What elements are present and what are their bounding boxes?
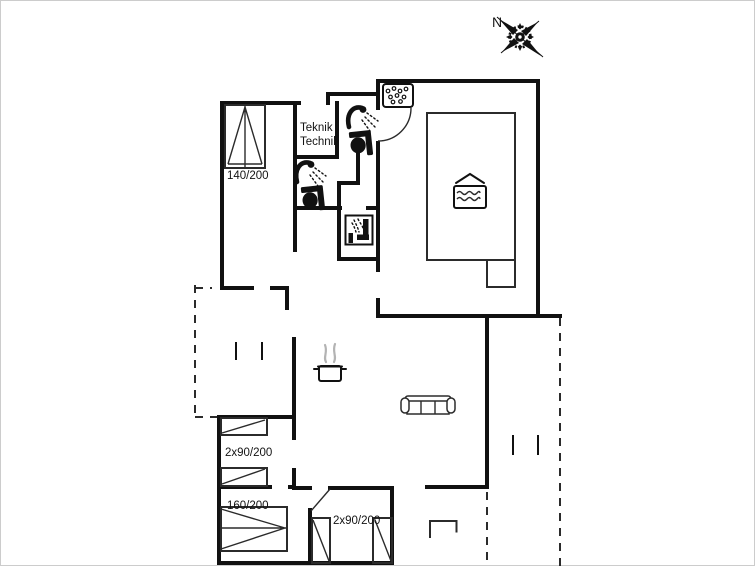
bed-label-2x90-200-south: 2x90/200: [333, 515, 380, 527]
shower-icon-bath1: [348, 106, 378, 131]
pool-steps: [487, 260, 515, 287]
sofa-icon: [401, 396, 455, 414]
walls: [219, 81, 560, 563]
terrace-opening-marks-east: [513, 435, 538, 455]
door-leaf-bedroom-south: [311, 489, 330, 511]
bed-160x200: [221, 507, 287, 551]
steaming-pot-icon: [314, 344, 346, 381]
bed-label-2x90-200-west: 2x90/200: [225, 447, 272, 459]
bed-140x200: [225, 105, 265, 168]
shower-icon-bath2: [296, 161, 326, 186]
whirlpool-bath-icon: [383, 84, 413, 107]
bed-2x90x200-west-1: [221, 418, 267, 435]
room-label-teknik-line2: Technik: [300, 136, 339, 148]
floor-plan-page: N Teknik / Technik 140/200 2x90/200 160/…: [0, 0, 755, 566]
compass-rose-icon: N: [492, 14, 543, 57]
indoor-pool-icon: [454, 174, 486, 208]
terrace-table-icon: [430, 521, 457, 538]
terrace-opening-marks-west: [236, 342, 262, 360]
shower-cabin-icon: [346, 216, 373, 245]
terrace-dashed-outline-west: [195, 285, 219, 417]
compass-north-label: N: [492, 14, 502, 30]
terrace-dashed-outline-east: [487, 318, 560, 566]
bed-label-160-200: 160/200: [227, 500, 269, 512]
door-swing-pool-entry: [378, 108, 411, 141]
floor-plan-svg: N Teknik / Technik 140/200 2x90/200 160/…: [0, 0, 755, 566]
room-label-teknik-line1: Teknik /: [300, 122, 340, 134]
bed-label-140-200: 140/200: [227, 170, 269, 182]
bed-2x90x200-south-1: [312, 518, 330, 563]
toilet-icon-bath1: [349, 130, 373, 157]
bed-2x90x200-west-2: [221, 468, 267, 486]
